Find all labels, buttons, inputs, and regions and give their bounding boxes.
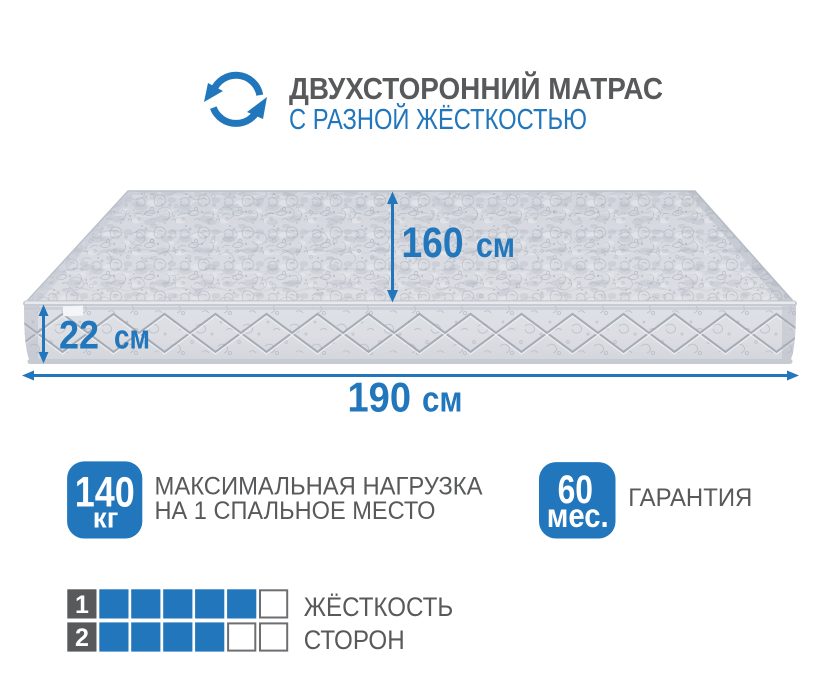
svg-text:22: 22 (59, 313, 99, 357)
svg-text:ЖЁСТКОСТЬ: ЖЁСТКОСТЬ (304, 592, 454, 622)
svg-text:см: см (114, 318, 150, 356)
svg-text:кг: кг (93, 503, 119, 535)
svg-text:см: см (476, 226, 515, 265)
svg-text:2: 2 (75, 624, 89, 652)
svg-text:СТОРОН: СТОРОН (304, 625, 405, 655)
svg-text:ГАРАНТИЯ: ГАРАНТИЯ (628, 484, 752, 512)
svg-text:С РАЗНОЙ ЖЁСТКОСТЬЮ: С РАЗНОЙ ЖЁСТКОСТЬЮ (289, 104, 587, 136)
svg-text:160: 160 (402, 219, 464, 267)
svg-text:НА 1 СПАЛЬНОЕ МЕСТО: НА 1 СПАЛЬНОЕ МЕСТО (155, 497, 436, 525)
svg-text:ДВУХСТОРОННИЙ МАТРАС: ДВУХСТОРОННИЙ МАТРАС (289, 70, 663, 106)
svg-text:190: 190 (348, 373, 412, 420)
svg-text:см: см (422, 378, 463, 419)
svg-text:мес.: мес. (547, 497, 609, 534)
svg-text:1: 1 (75, 591, 89, 619)
